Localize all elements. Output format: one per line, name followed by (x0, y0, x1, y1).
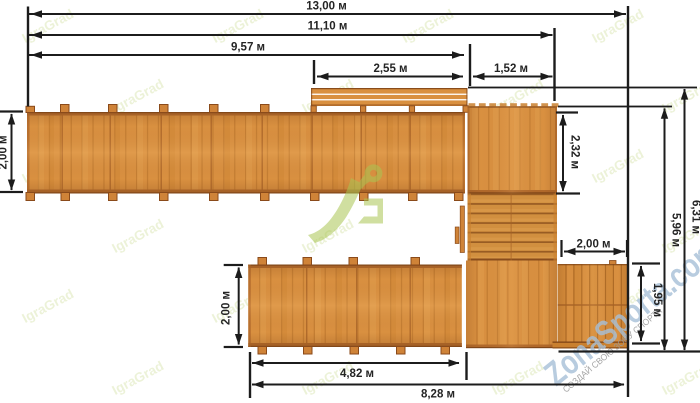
svg-text:2,00 м: 2,00 м (576, 239, 610, 251)
svg-text:1,95 м: 1,95 м (651, 283, 663, 317)
svg-text:11,10 м: 11,10 м (308, 21, 348, 33)
svg-text:2,00 м: 2,00 м (0, 135, 10, 169)
svg-text:9,57 м: 9,57 м (231, 42, 265, 54)
svg-text:5,96 м: 5,96 м (670, 213, 682, 247)
svg-text:2,32 м: 2,32 м (569, 135, 581, 169)
svg-text:1,52 м: 1,52 м (494, 63, 528, 75)
svg-text:8,28 м: 8,28 м (421, 389, 455, 401)
svg-text:2,00 м: 2,00 м (221, 291, 233, 325)
svg-text:6,31 м: 6,31 м (690, 200, 700, 234)
svg-text:4,82 м: 4,82 м (340, 368, 374, 380)
svg-text:13,00 м: 13,00 м (306, 1, 346, 13)
svg-text:2,55 м: 2,55 м (373, 63, 407, 75)
